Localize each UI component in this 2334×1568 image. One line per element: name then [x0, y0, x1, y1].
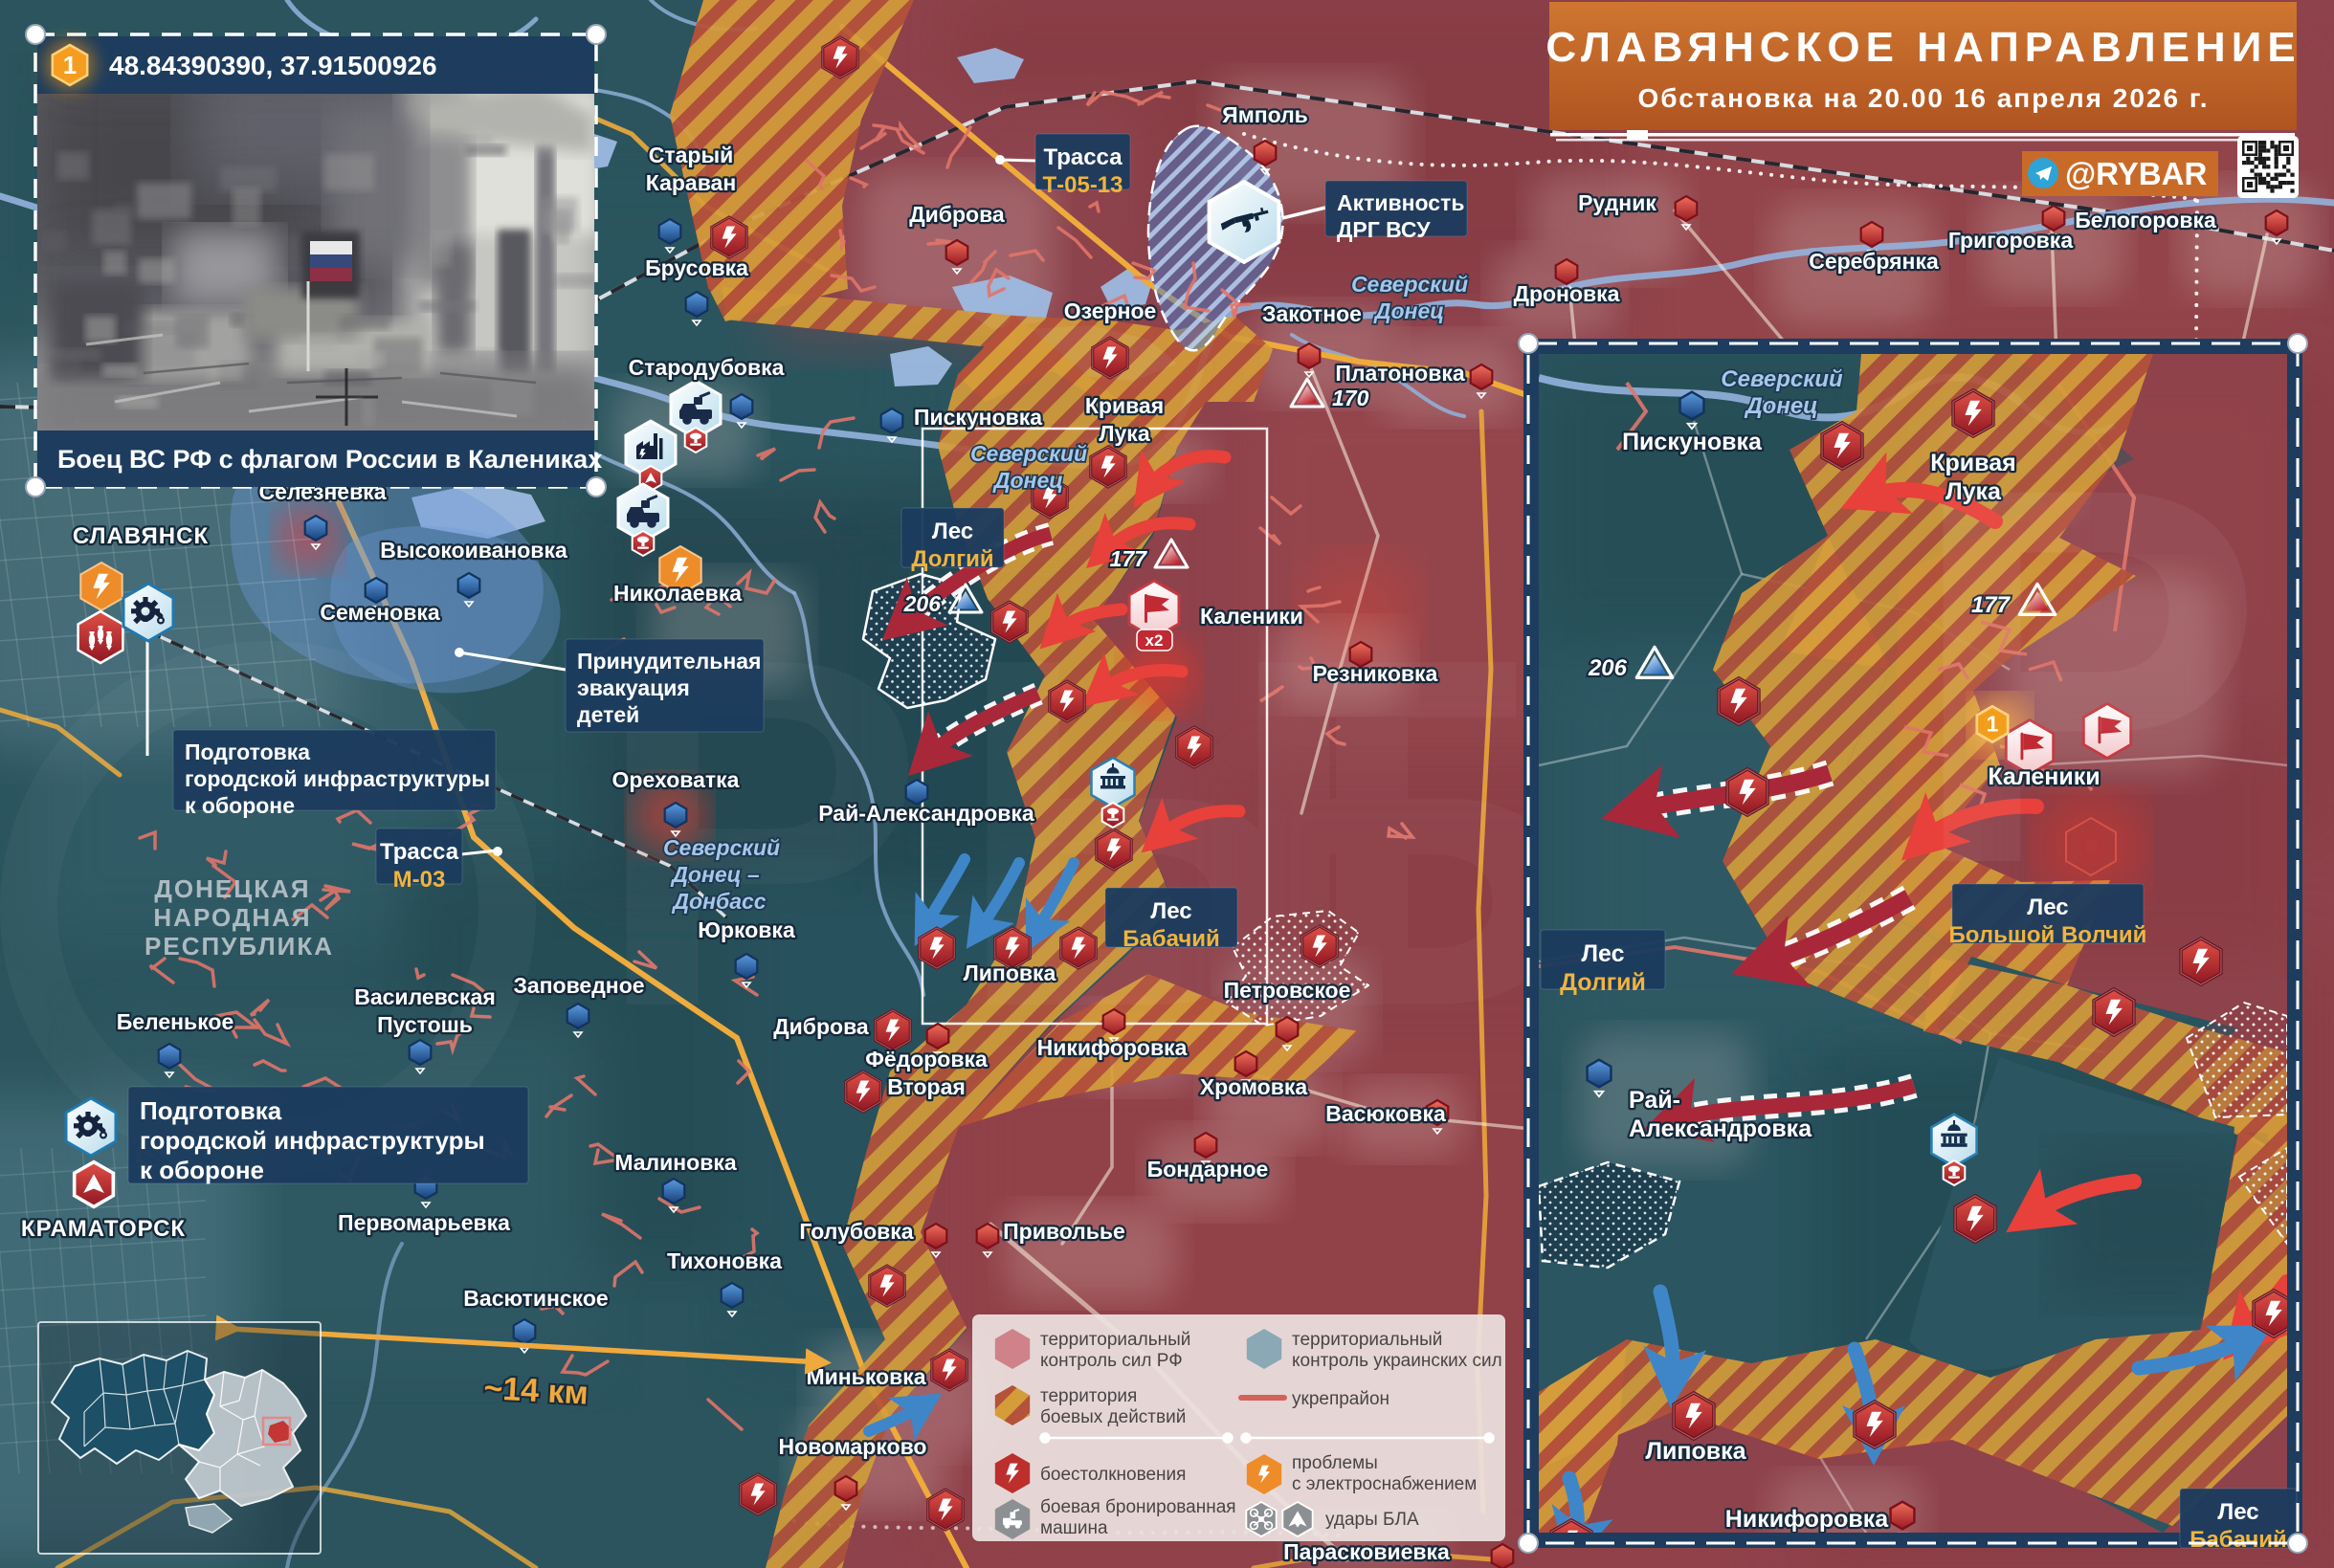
- svg-text:Бабачий: Бабачий: [2190, 1527, 2287, 1553]
- svg-text:x2: x2: [1145, 631, 1164, 650]
- svg-text:Рай-: Рай-: [1629, 1087, 1680, 1114]
- svg-text:Заповедное: Заповедное: [513, 973, 644, 998]
- svg-text:Старый: Старый: [649, 143, 734, 167]
- svg-text:территория: территория: [1040, 1386, 1137, 1406]
- svg-text:Северский: Северский: [1351, 272, 1468, 297]
- svg-text:укрепрайон: укрепрайон: [1292, 1389, 1389, 1409]
- svg-text:Лес: Лес: [932, 519, 973, 544]
- svg-text:городской инфраструктуры: городской инфраструктуры: [185, 766, 490, 791]
- svg-text:Брусовка: Брусовка: [645, 255, 748, 280]
- svg-text:Александровка: Александровка: [1629, 1115, 1812, 1142]
- svg-text:Вторая: Вторая: [887, 1074, 966, 1099]
- svg-text:Обстановка на 20.00 16 апреля: Обстановка на 20.00 16 апреля 2026 г.: [1638, 83, 2210, 113]
- svg-text:боестолкновения: боестолкновения: [1040, 1465, 1186, 1485]
- svg-text:Закотное: Закотное: [1262, 301, 1362, 326]
- svg-text:Хромовка: Хромовка: [1200, 1074, 1308, 1099]
- svg-text:Донец: Донец: [992, 468, 1063, 493]
- svg-text:Озерное: Озерное: [1064, 298, 1157, 323]
- svg-text:Привольье: Привольье: [1003, 1219, 1125, 1244]
- svg-text:Каленики: Каленики: [1200, 604, 1303, 629]
- svg-text:Бондарное: Бондарное: [1147, 1157, 1269, 1182]
- svg-text:Серебрянка: Серебрянка: [1809, 249, 1939, 274]
- svg-text:боевая бронированная: боевая бронированная: [1040, 1497, 1236, 1517]
- svg-text:Высокоивановка: Высокоивановка: [380, 538, 567, 563]
- svg-text:Лука: Лука: [1099, 421, 1149, 446]
- svg-text:РЕСПУБЛИКА: РЕСПУБЛИКА: [144, 932, 334, 961]
- svg-text:Подготовка: Подготовка: [140, 1096, 282, 1125]
- svg-text:Т-05-13: Т-05-13: [1042, 172, 1123, 198]
- svg-text:территориальный: территориальный: [1292, 1330, 1442, 1350]
- svg-text:детей: детей: [577, 702, 639, 727]
- svg-text:Подготовка: Подготовка: [185, 740, 310, 764]
- svg-text:Николаевка: Николаевка: [613, 581, 742, 606]
- svg-text:48.84390390, 37.91500926: 48.84390390, 37.91500926: [109, 51, 437, 80]
- svg-text:177: 177: [1110, 546, 1148, 571]
- svg-text:контроль сил РФ: контроль сил РФ: [1040, 1351, 1183, 1371]
- svg-text:Трасса: Трасса: [380, 839, 459, 865]
- svg-text:Липовка: Липовка: [1645, 1438, 1746, 1465]
- svg-text:@RYBAR: @RYBAR: [2065, 156, 2207, 191]
- svg-text:машина: машина: [1040, 1518, 1108, 1538]
- svg-text:Первомарьевка: Первомарьевка: [338, 1210, 510, 1235]
- svg-text:Никифоровка: Никифоровка: [1037, 1035, 1188, 1060]
- svg-text:Принудительная: Принудительная: [577, 649, 761, 674]
- svg-text:Большой Волчий: Большой Волчий: [1949, 922, 2147, 948]
- svg-text:городской инфраструктуры: городской инфраструктуры: [140, 1126, 485, 1155]
- svg-text:Никифоровка: Никифоровка: [1725, 1506, 1890, 1533]
- svg-text:Рай-Александровка: Рай-Александровка: [818, 801, 1034, 826]
- svg-text:Караван: Караван: [646, 170, 736, 195]
- svg-text:Василевская: Василевская: [354, 984, 496, 1009]
- svg-text:Северский: Северский: [663, 835, 780, 860]
- svg-text:Ямполь: Ямполь: [1222, 102, 1308, 127]
- svg-text:Васютинское: Васютинское: [463, 1286, 608, 1311]
- svg-text:М-03: М-03: [393, 867, 446, 893]
- svg-text:с электроснабжением: с электроснабжением: [1292, 1474, 1477, 1494]
- svg-text:Трасса: Трасса: [1043, 144, 1123, 170]
- svg-text:206: 206: [903, 591, 942, 616]
- svg-text:~14 км: ~14 км: [483, 1370, 589, 1412]
- svg-text:к обороне: к обороне: [140, 1156, 264, 1184]
- svg-text:Стародубовка: Стародубовка: [629, 355, 785, 380]
- svg-text:Петровское: Петровское: [1224, 978, 1351, 1003]
- svg-text:Парасковиевка: Парасковиевка: [1283, 1539, 1450, 1564]
- svg-text:Миньковка: Миньковка: [806, 1364, 925, 1389]
- svg-text:Лес: Лес: [2027, 894, 2068, 920]
- svg-text:Тихоновка: Тихоновка: [667, 1248, 782, 1273]
- svg-text:боевых действий: боевых действий: [1040, 1407, 1186, 1427]
- svg-text:170: 170: [1332, 386, 1369, 410]
- svg-text:Васюковка: Васюковка: [1325, 1101, 1446, 1126]
- svg-text:Северский: Северский: [970, 441, 1087, 466]
- svg-text:СЛАВЯНСКОЕ НАПРАВЛЕНИЕ: СЛАВЯНСКОЕ НАПРАВЛЕНИЕ: [1545, 24, 2301, 71]
- svg-text:Донбасс: Донбасс: [671, 889, 766, 914]
- svg-text:Пискуновка: Пискуновка: [1622, 429, 1763, 455]
- svg-text:Боец ВС РФ с флагом России в К: Боец ВС РФ с флагом России в Калениках: [57, 445, 602, 474]
- svg-text:Фёдоровка: Фёдоровка: [865, 1047, 988, 1071]
- svg-text:КРАМАТОРСК: КРАМАТОРСК: [21, 1216, 186, 1242]
- svg-text:Лес: Лес: [1150, 898, 1191, 924]
- svg-text:1: 1: [63, 51, 77, 79]
- svg-text:Григоровка: Григоровка: [1948, 228, 2073, 253]
- svg-text:Юрковка: Юрковка: [698, 917, 795, 942]
- svg-text:Лес: Лес: [2217, 1499, 2258, 1525]
- svg-text:Голубовка: Голубовка: [799, 1219, 913, 1244]
- svg-text:СЛАВЯНСК: СЛАВЯНСК: [73, 523, 209, 549]
- svg-text:Долгий: Долгий: [1560, 969, 1646, 996]
- svg-text:эвакуация: эвакуация: [577, 675, 690, 700]
- svg-text:Рудник: Рудник: [1578, 190, 1656, 215]
- svg-text:Малиновка: Малиновка: [614, 1150, 737, 1175]
- svg-text:Ореховатка: Ореховатка: [612, 767, 740, 792]
- svg-text:ДРГ ВСУ: ДРГ ВСУ: [1337, 217, 1431, 242]
- svg-text:Диброва: Диброва: [909, 202, 1005, 227]
- svg-text:206: 206: [1588, 655, 1628, 681]
- svg-text:Платоновка: Платоновка: [1335, 361, 1465, 386]
- svg-text:Долгий: Долгий: [911, 546, 993, 572]
- svg-text:Активность: Активность: [1337, 190, 1465, 215]
- svg-text:территориальный: территориальный: [1040, 1330, 1190, 1350]
- svg-text:Кривая: Кривая: [1085, 393, 1164, 418]
- svg-text:Диброва: Диброва: [773, 1014, 869, 1039]
- svg-text:ДОНЕЦКАЯ: ДОНЕЦКАЯ: [154, 874, 310, 903]
- svg-text:Северский: Северский: [1721, 366, 1843, 392]
- svg-text:Пустошь: Пустошь: [377, 1012, 473, 1037]
- svg-text:проблемы: проблемы: [1292, 1453, 1378, 1473]
- svg-text:Донец: Донец: [1373, 298, 1444, 323]
- svg-text:НАРОДНАЯ: НАРОДНАЯ: [153, 903, 311, 932]
- svg-text:Новомарково: Новомарково: [779, 1434, 927, 1459]
- svg-text:Беленькое: Беленькое: [117, 1009, 234, 1034]
- svg-text:Донец –: Донец –: [670, 862, 760, 887]
- svg-text:Бабачий: Бабачий: [1123, 926, 1220, 952]
- svg-text:Липовка: Липовка: [964, 961, 1056, 985]
- svg-text:Дроновка: Дроновка: [1514, 281, 1620, 306]
- svg-text:Белогоровка: Белогоровка: [2075, 208, 2216, 232]
- svg-text:Донец: Донец: [1744, 393, 1817, 419]
- svg-text:Резниковка: Резниковка: [1313, 661, 1438, 686]
- svg-text:удары БЛА: удары БЛА: [1325, 1510, 1419, 1530]
- svg-text:к обороне: к обороне: [185, 793, 295, 818]
- svg-text:Лес: Лес: [1581, 940, 1624, 967]
- svg-text:Пискуновка: Пискуновка: [914, 405, 1042, 430]
- svg-text:Семеновка: Семеновка: [320, 600, 439, 625]
- svg-text:контроль украинских сил: контроль украинских сил: [1292, 1351, 1502, 1371]
